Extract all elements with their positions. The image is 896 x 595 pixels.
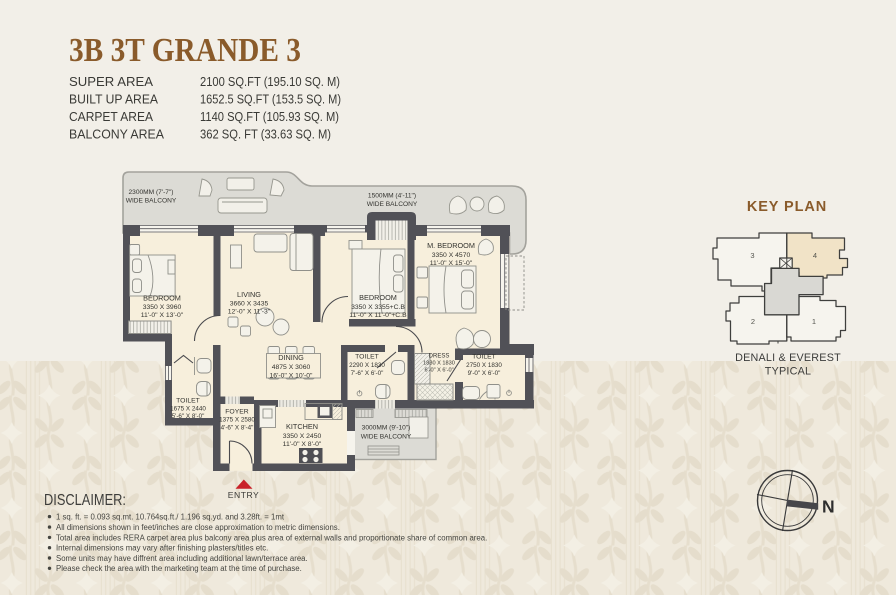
svg-text:1375 X 2580: 1375 X 2580 bbox=[219, 417, 255, 424]
svg-text:BUILT UP AREA: BUILT UP AREA bbox=[69, 92, 158, 107]
svg-text:11'-0" X 8'-0": 11'-0" X 8'-0" bbox=[283, 441, 322, 448]
svg-text:LIVING: LIVING bbox=[237, 290, 261, 299]
svg-text:1500MM (4'-11"): 1500MM (4'-11") bbox=[368, 193, 416, 200]
svg-text:Total area includes RERA carpe: Total area includes RERA carpet area plu… bbox=[56, 533, 487, 542]
svg-text:WIDE BALCONY: WIDE BALCONY bbox=[126, 198, 177, 205]
svg-text:3350 X 3960: 3350 X 3960 bbox=[143, 304, 182, 311]
svg-text:CARPET AREA: CARPET AREA bbox=[69, 109, 153, 124]
svg-text:FOYER: FOYER bbox=[225, 409, 249, 416]
svg-text:DRESS: DRESS bbox=[429, 354, 450, 360]
svg-text:1830 X 1830: 1830 X 1830 bbox=[423, 361, 455, 367]
svg-text:362 SQ. FT (33.63 SQ. M): 362 SQ. FT (33.63 SQ. M) bbox=[200, 127, 331, 142]
svg-text:1652.5 SQ.FT (153.5 SQ. M): 1652.5 SQ.FT (153.5 SQ. M) bbox=[200, 92, 341, 107]
svg-text:2750 X 1830: 2750 X 1830 bbox=[466, 362, 502, 369]
svg-text:2300MM (7'-7"): 2300MM (7'-7") bbox=[128, 189, 173, 196]
svg-text:2: 2 bbox=[751, 317, 755, 326]
svg-text:1: 1 bbox=[812, 317, 816, 326]
svg-text:2290 X 1830: 2290 X 1830 bbox=[349, 362, 385, 369]
svg-text:KITCHEN: KITCHEN bbox=[286, 422, 318, 431]
svg-text:1140 SQ.FT (105.93 SQ. M): 1140 SQ.FT (105.93 SQ. M) bbox=[200, 109, 339, 124]
svg-text:TOILET: TOILET bbox=[472, 354, 496, 361]
svg-text:WIDE BALCONY: WIDE BALCONY bbox=[367, 201, 418, 208]
svg-text:6'-0" X 6'-0": 6'-0" X 6'-0" bbox=[424, 368, 453, 374]
svg-text:3000MM (9'-10"): 3000MM (9'-10") bbox=[362, 425, 411, 432]
svg-text:7'-6" X 6'-0": 7'-6" X 6'-0" bbox=[351, 370, 384, 377]
svg-text:3660 X 3435: 3660 X 3435 bbox=[230, 301, 269, 308]
svg-text:4'-6" X 8'-4": 4'-6" X 8'-4" bbox=[221, 425, 254, 432]
svg-text:4875 X 3060: 4875 X 3060 bbox=[272, 364, 311, 371]
svg-text:TOILET: TOILET bbox=[355, 354, 379, 361]
svg-text:2100 SQ.FT (195.10 SQ. M): 2100 SQ.FT (195.10 SQ. M) bbox=[200, 74, 340, 89]
svg-text:3: 3 bbox=[750, 251, 754, 260]
svg-text:All dimensions shown in feet/i: All dimensions shown in feet/inches are … bbox=[56, 523, 340, 532]
svg-text:16'-0" X 10'-0": 16'-0" X 10'-0" bbox=[270, 373, 314, 380]
svg-text:12'-0" X 11'-3": 12'-0" X 11'-3" bbox=[228, 309, 271, 316]
svg-text:1 sq. ft. = 0.093 sq.mt. 10.76: 1 sq. ft. = 0.093 sq.mt. 10.764sq.ft./ 1… bbox=[56, 513, 285, 522]
svg-text:3350 X 4570: 3350 X 4570 bbox=[432, 252, 471, 259]
svg-text:DENALI & EVEREST: DENALI & EVEREST bbox=[735, 352, 841, 364]
svg-text:11'-0" X 15'-0": 11'-0" X 15'-0" bbox=[430, 260, 473, 267]
svg-text:SUPER AREA: SUPER AREA bbox=[69, 74, 153, 89]
svg-text:Please check the area with the: Please check the area with the marketing… bbox=[56, 564, 302, 573]
svg-text:BEDROOM: BEDROOM bbox=[143, 294, 181, 303]
svg-text:5'-6" X 8'-0": 5'-6" X 8'-0" bbox=[172, 413, 205, 420]
svg-text:11'-0" X 13'-0": 11'-0" X 13'-0" bbox=[141, 312, 184, 319]
svg-text:N: N bbox=[822, 497, 835, 517]
svg-text:BALCONY AREA: BALCONY AREA bbox=[69, 127, 164, 142]
svg-text:4: 4 bbox=[813, 251, 817, 260]
svg-text:Internal dimensions may vary a: Internal dimensions may vary after finis… bbox=[56, 544, 268, 553]
svg-text:DISCLAIMER:: DISCLAIMER: bbox=[44, 492, 126, 509]
svg-text:ENTRY: ENTRY bbox=[228, 490, 259, 500]
svg-text:Some units may have diffrent a: Some units may have diffrent area includ… bbox=[56, 554, 308, 563]
svg-text:TYPICAL: TYPICAL bbox=[765, 366, 811, 378]
svg-text:9'-0" X 6'-0": 9'-0" X 6'-0" bbox=[468, 370, 501, 377]
svg-text:DINING: DINING bbox=[278, 353, 304, 362]
svg-text:3350 X 3355+C.B: 3350 X 3355+C.B bbox=[351, 304, 405, 311]
svg-text:TOILET: TOILET bbox=[176, 398, 200, 405]
svg-text:3350 X 2450: 3350 X 2450 bbox=[283, 433, 322, 440]
svg-text:BEDROOM: BEDROOM bbox=[359, 293, 397, 302]
svg-text:KEY PLAN: KEY PLAN bbox=[747, 199, 827, 215]
svg-text:M. BEDROOM: M. BEDROOM bbox=[427, 241, 475, 250]
svg-text:3B 3T GRANDE 3: 3B 3T GRANDE 3 bbox=[69, 32, 301, 69]
svg-text:11'-0" X 11'-0"+C.B: 11'-0" X 11'-0"+C.B bbox=[349, 312, 407, 319]
svg-text:1675 X 2440: 1675 X 2440 bbox=[170, 406, 206, 413]
svg-text:WIDE BALCONY: WIDE BALCONY bbox=[361, 434, 412, 441]
